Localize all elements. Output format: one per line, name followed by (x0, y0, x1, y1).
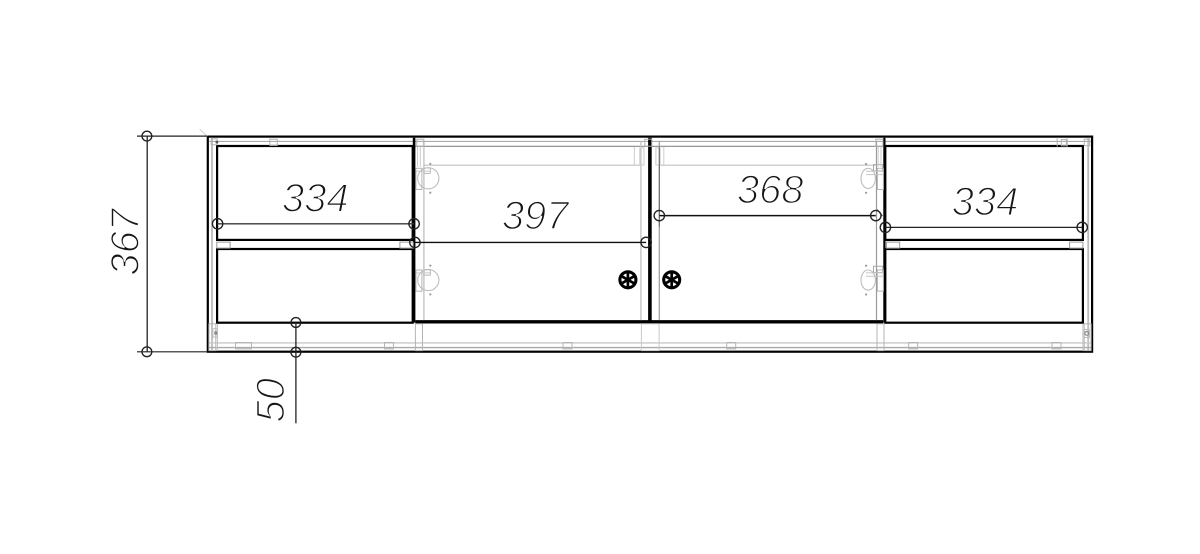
svg-text:367: 367 (104, 207, 148, 275)
svg-text:368: 368 (737, 168, 804, 212)
svg-text:50: 50 (249, 378, 293, 423)
svg-text:334: 334 (282, 177, 349, 221)
svg-text:397: 397 (502, 194, 570, 238)
svg-text:334: 334 (952, 180, 1019, 224)
